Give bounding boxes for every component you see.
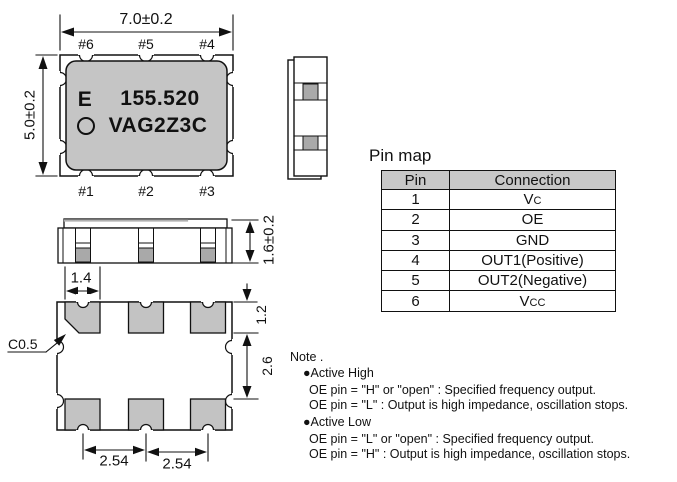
front-height-dim-label: 1.6±0.2 — [261, 215, 278, 265]
note-title: Note . — [290, 350, 323, 364]
bottom-view — [48, 294, 241, 438]
pin-number: 1 — [382, 190, 450, 210]
pad-height-dim-label: 1.2 — [253, 305, 269, 324]
table-row: 4 OUT1(Positive) — [382, 250, 616, 270]
pin-number: 4 — [382, 250, 450, 270]
front-height-dimension — [232, 220, 258, 263]
pin-label-3: #3 — [199, 183, 215, 199]
note-active-high-heading: ●Active High — [303, 366, 374, 380]
note-line: OE pin = "L" : Output is high impedance,… — [309, 398, 628, 412]
pin-label-2: #2 — [138, 183, 154, 199]
pin-connection: GND — [450, 230, 616, 250]
note-line: OE pin = "H" : Output is high impedance,… — [309, 447, 630, 461]
top-width-dim-label: 7.0±0.2 — [119, 11, 172, 29]
marking-frequency: 155.520 — [120, 87, 199, 111]
pin-number: 6 — [382, 291, 450, 311]
chamfer-label: C0.5 — [8, 336, 38, 352]
note-active-low-heading: ●Active Low — [303, 415, 371, 429]
pin-connection: OUT1(Positive) — [450, 250, 616, 270]
table-row: 2 OE — [382, 210, 616, 230]
front-view — [58, 219, 232, 263]
pitch-dim-label-1: 2.54 — [99, 453, 128, 470]
side-view — [288, 57, 327, 179]
pin-label-4: #4 — [199, 36, 215, 52]
pin-map-table: Pin Connection 1 Vc 2 OE 3 GND 4 OUT1(Po… — [381, 170, 616, 312]
pitch-dim-label-2: 2.54 — [162, 456, 191, 473]
table-row: 3 GND — [382, 230, 616, 250]
pin-connection: OUT2(Negative) — [450, 271, 616, 291]
pin-map-title: Pin map — [369, 146, 431, 166]
side-castellation-pad — [303, 136, 318, 150]
table-row: 6 Vcc — [382, 291, 616, 311]
pad-gap-dim-label: 2.6 — [259, 356, 275, 375]
circle-mark-icon — [77, 117, 95, 135]
side-castellation-pad — [303, 84, 318, 100]
pin-connection: OE — [450, 210, 616, 230]
note-line: OE pin = "H" or "open" : Specified frequ… — [309, 383, 596, 397]
pin-label-5: #5 — [138, 36, 154, 52]
pin-connection: Vcc — [450, 291, 616, 311]
pin-number: 5 — [382, 271, 450, 291]
pin-map-header-pin: Pin — [382, 171, 450, 190]
table-row: 5 OUT2(Negative) — [382, 271, 616, 291]
marking-vendor-letter: E — [78, 88, 93, 112]
pin-number: 2 — [382, 210, 450, 230]
package-drawing-sheet: 7.0±0.2 #6 #5 #4 5.0±0.2 E 155.520 VAG2Z… — [0, 0, 677, 482]
pin-label-1: #1 — [78, 183, 94, 199]
left-height-dim-label: 5.0±0.2 — [22, 90, 39, 140]
pad-width-dim-label: 1.4 — [71, 270, 92, 287]
table-row: 1 Vc — [382, 190, 616, 210]
pin-number: 3 — [382, 230, 450, 250]
pin-label-6: #6 — [78, 36, 94, 52]
pin-map-header-connection: Connection — [450, 171, 616, 190]
note-line: OE pin = "L" or "open" : Specified frequ… — [309, 432, 594, 446]
marking-part-code: VAG2Z3C — [109, 114, 208, 138]
pin-connection: Vc — [450, 190, 616, 210]
pin-map-header-row: Pin Connection — [382, 171, 616, 190]
